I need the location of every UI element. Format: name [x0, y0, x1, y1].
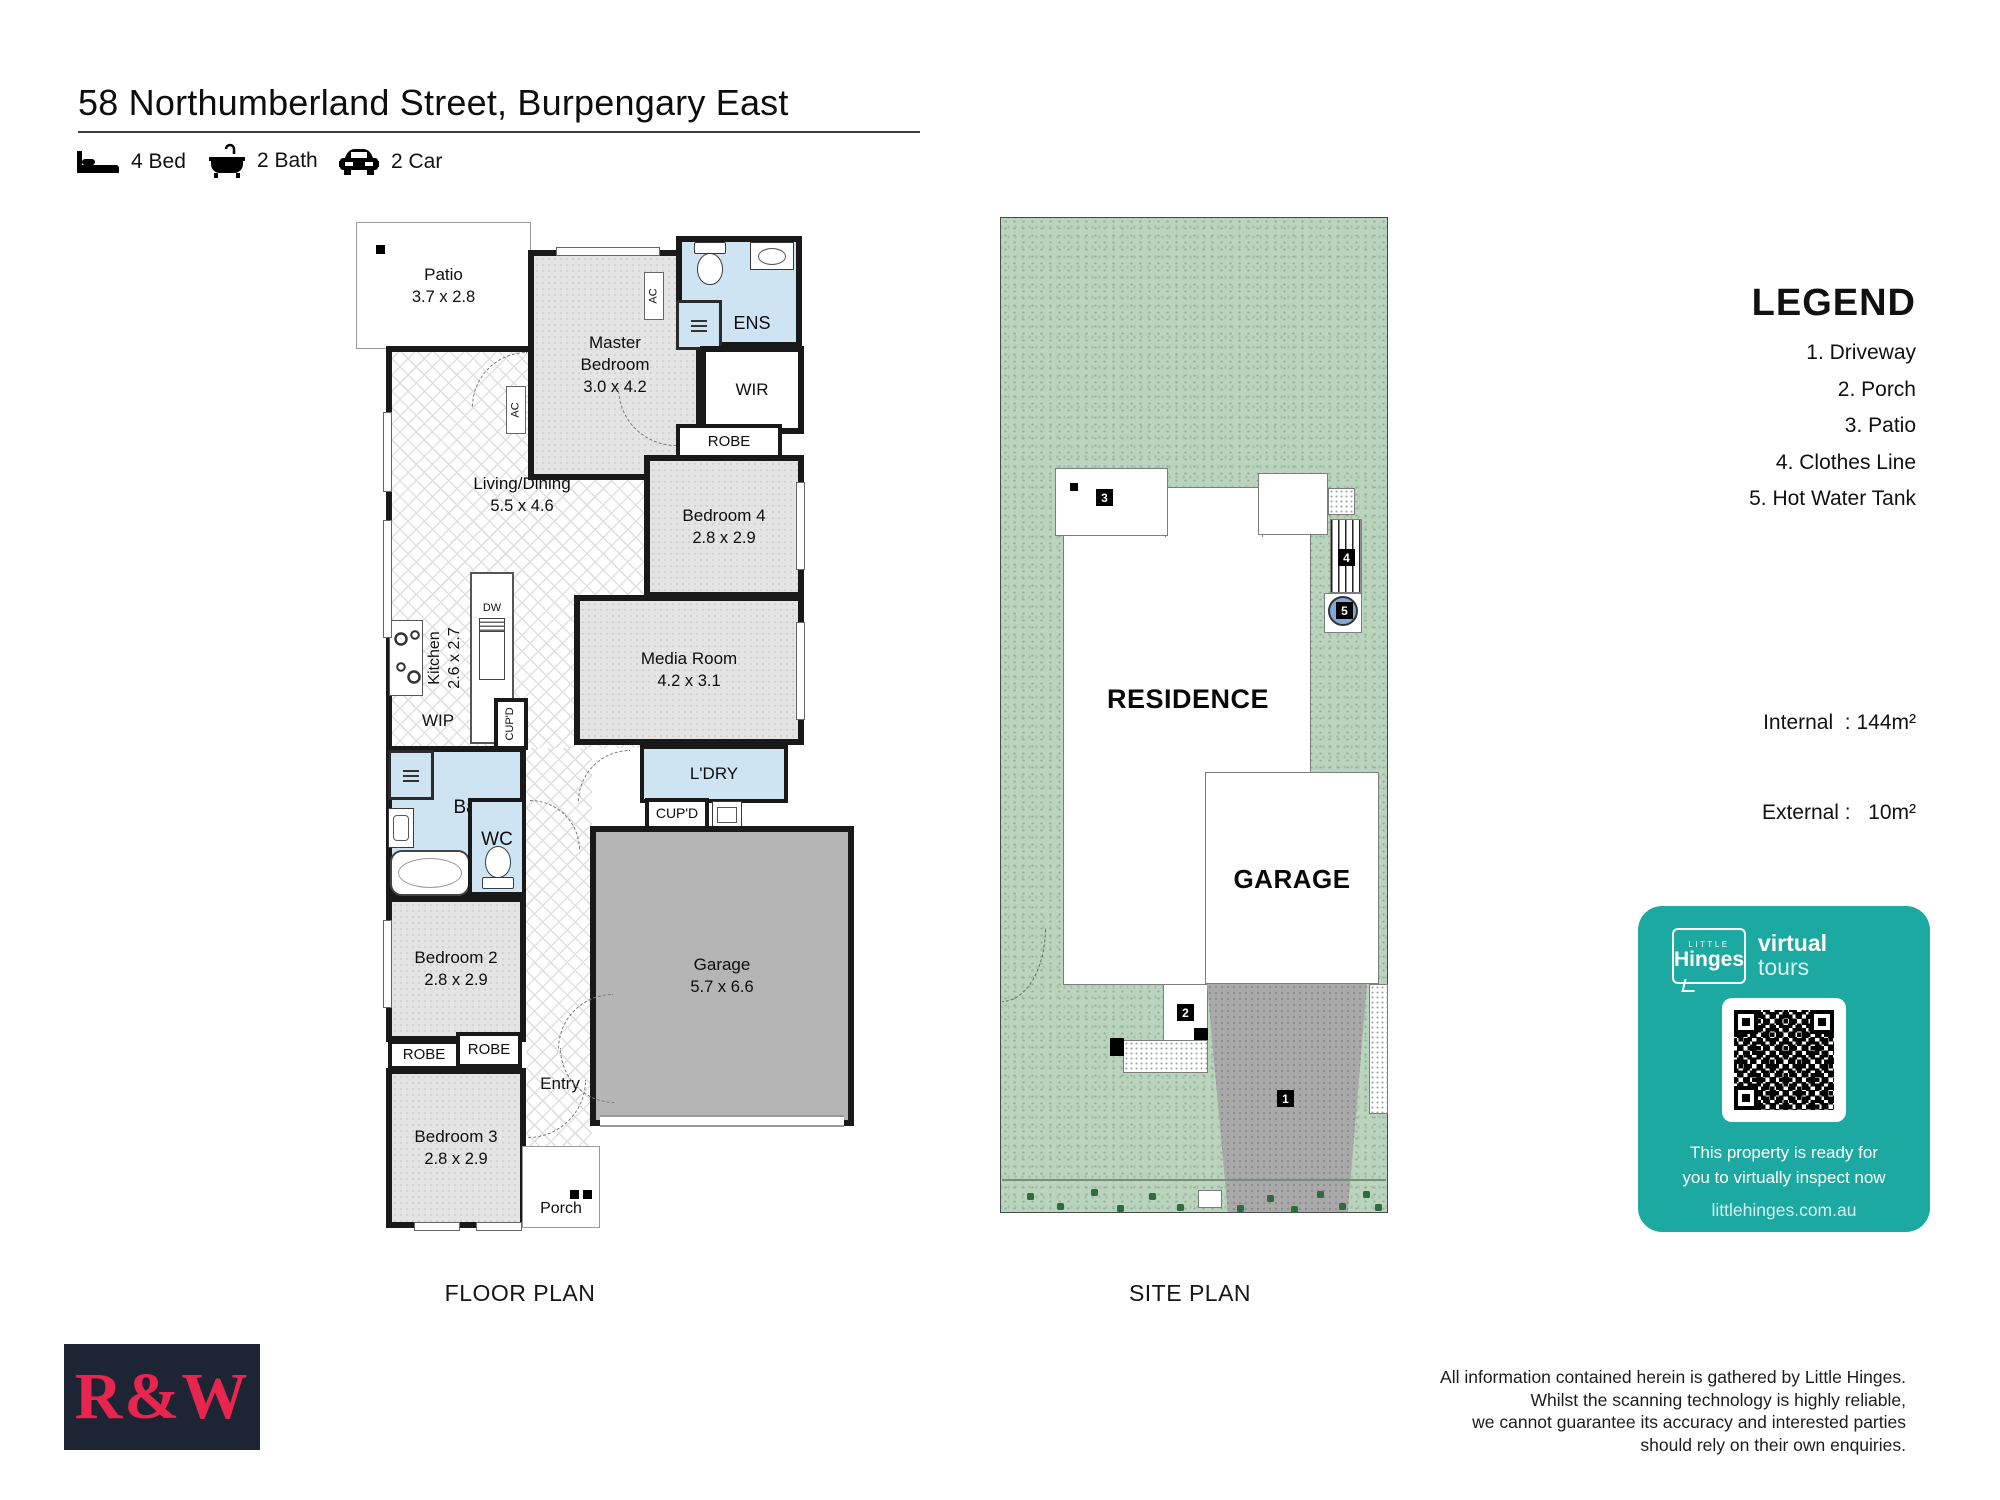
floor-plan-caption: FLOOR PLAN [420, 1280, 620, 1307]
legend-item: 2. Porch [1596, 372, 1916, 409]
garden-shrubs [1002, 1182, 1003, 1183]
bathtub-basin [398, 858, 462, 888]
window [383, 520, 392, 638]
robe-left: ROBE [388, 1040, 460, 1070]
bath-icon [207, 142, 247, 180]
car-icon [337, 145, 381, 178]
marker-clothes-line: 4 [1338, 549, 1355, 566]
internal-area: Internal : 144m² [1596, 708, 1916, 738]
shower-icon [388, 750, 434, 800]
room-bedroom2: Bedroom 2 2.8 x 2.9 [386, 896, 526, 1042]
toilet-icon [694, 242, 726, 288]
title-divider [78, 131, 920, 133]
window [796, 622, 805, 720]
disclaimer-line: Whilst the scanning technology is highly… [1346, 1389, 1906, 1412]
stove-icon [389, 620, 423, 696]
qr-code [1734, 1010, 1834, 1110]
legend-item: 4. Clothes Line [1596, 445, 1916, 482]
site-side-path [1369, 984, 1388, 1114]
room-label: ENS [733, 312, 770, 335]
site-plan-caption: SITE PLAN [1090, 1280, 1290, 1307]
window [383, 920, 392, 1008]
sink-icon [750, 242, 794, 270]
page-title: 58 Northumberland Street, Burpengary Eas… [78, 82, 789, 124]
legend-item: 1. Driveway [1596, 335, 1916, 372]
window [796, 482, 805, 570]
toilet-bowl [485, 846, 511, 878]
agency-logo-text: R&W [75, 1359, 250, 1435]
room-label: Master Bedroom [567, 332, 663, 375]
cupboard-kitchen: CUP'D [494, 698, 528, 750]
marker-porch: 2 [1177, 1004, 1194, 1021]
room-kitchen-label: Kitchen 2.6 x 2.7 [423, 598, 467, 718]
marker-hot-water-tank: 5 [1336, 602, 1353, 619]
bed-icon [75, 146, 121, 178]
room-label: ROBE [708, 433, 751, 452]
room-laundry: L'DRY [640, 745, 788, 803]
disclaimer: All information contained herein is gath… [1346, 1366, 1906, 1456]
patio-post-marker [376, 245, 385, 254]
garden-edge [1002, 1179, 1386, 1181]
feature-cars: 2 Car [337, 145, 442, 178]
room-dims: 4.2 x 3.1 [657, 671, 720, 692]
room-label: Media Room [641, 648, 737, 669]
card-message-line2: you to virtually inspect now [1638, 1165, 1930, 1190]
room-bedroom4: Bedroom 4 2.8 x 2.9 [644, 455, 804, 598]
virtual-tours-wordmark: virtual tours [1758, 931, 1827, 980]
brand-virtual: virtual [1758, 931, 1827, 955]
sink-basin [393, 815, 409, 841]
garage-door [600, 1115, 844, 1127]
residence-label: RESIDENCE [1065, 684, 1311, 715]
site-wall-stub [1194, 1028, 1208, 1040]
room-label: CUP'D [656, 805, 698, 823]
toilet-tank [482, 877, 514, 889]
disclaimer-line: we cannot guarantee its accuracy and int… [1346, 1411, 1906, 1434]
room-porch: Porch [522, 1146, 600, 1228]
laundry-tub-icon [712, 801, 742, 828]
room-dims: 2.8 x 2.9 [424, 1149, 487, 1170]
ac-label: AC [648, 288, 660, 303]
room-dims: 5.7 x 6.6 [690, 977, 753, 998]
garage-site-label: GARAGE [1205, 864, 1379, 895]
marker-driveway: 1 [1277, 1090, 1294, 1107]
qr-code-box [1722, 998, 1846, 1122]
shower-head [691, 318, 707, 332]
room-label: WIR [735, 379, 768, 400]
brand-hinges: Hinges [1674, 949, 1744, 971]
legend-item: 5. Hot Water Tank [1596, 481, 1916, 518]
dishwasher-label: DW [472, 602, 512, 614]
room-dims: 3.7 x 2.8 [412, 287, 475, 308]
site-letterbox [1198, 1190, 1222, 1208]
little-hinges-logo: LITTLE Hinges virtual tours [1672, 928, 1827, 984]
agency-logo: R&W [64, 1344, 260, 1450]
room-label: Bedroom 2 [414, 947, 497, 968]
toilet-icon [482, 846, 514, 892]
card-website: littlehinges.com.au [1638, 1200, 1930, 1221]
porch-post-marker [583, 1190, 592, 1199]
room-label: Bedroom 3 [414, 1126, 497, 1147]
shower-head [403, 768, 419, 782]
legend-title: LEGEND [1596, 282, 1916, 325]
room-dims: 2.8 x 2.9 [424, 970, 487, 991]
shower-icon [676, 300, 722, 350]
legend: LEGEND 1. Driveway 2. Porch 3. Patio 4. … [1596, 282, 1916, 518]
car-count-label: 2 Car [391, 150, 442, 174]
sink-basin [758, 248, 786, 265]
laundry-basin [717, 807, 737, 823]
room-dims: 2.8 x 2.9 [692, 528, 755, 549]
disclaimer-line: All information contained herein is gath… [1346, 1366, 1906, 1389]
card-message-line1: This property is ready for [1638, 1140, 1930, 1165]
room-label: Patio [424, 264, 463, 285]
site-wall-stub [1110, 1038, 1124, 1056]
room-wip-label: WIP [408, 711, 468, 731]
room-label: Bedroom 4 [682, 505, 765, 526]
room-label: L'DRY [690, 763, 738, 784]
room-label: ROBE [403, 1046, 446, 1065]
card-message: This property is ready for you to virtua… [1638, 1140, 1930, 1190]
hinges-bubble-icon: LITTLE Hinges [1672, 928, 1746, 984]
room-label: Porch [540, 1199, 582, 1219]
room-label: ROBE [468, 1041, 511, 1060]
site-residence-step [1165, 487, 1263, 537]
window [556, 247, 660, 256]
feature-baths: 2 Bath [207, 142, 318, 180]
room-label: Garage [694, 954, 751, 975]
vanity-icon [388, 808, 414, 848]
room-dims: 5.5 x 4.6 [490, 496, 553, 517]
site-rear-porch [1328, 488, 1355, 515]
site-patio-post [1070, 483, 1078, 491]
room-bedroom3: Bedroom 3 2.8 x 2.9 [386, 1068, 526, 1228]
room-garage: Garage 5.7 x 6.6 [590, 826, 854, 1126]
window [414, 1222, 460, 1231]
virtual-tour-card: LITTLE Hinges virtual tours This propert… [1638, 906, 1930, 1232]
room-patio: Patio 3.7 x 2.8 [356, 222, 531, 349]
disclaimer-line: should rely on their own enquiries. [1346, 1434, 1906, 1457]
external-area: External : 10m² [1596, 798, 1916, 828]
room-dims: 2.6 x 2.7 [445, 627, 465, 688]
legend-item: 3. Patio [1596, 408, 1916, 445]
ac-unit: AC [644, 272, 664, 320]
room-label: Kitchen [425, 631, 445, 684]
bed-count-label: 4 Bed [131, 150, 186, 174]
brand-tours: tours [1758, 955, 1827, 980]
speech-tail [1681, 979, 1697, 992]
robe-right: ROBE [456, 1032, 522, 1068]
room-wir: WIR [700, 346, 804, 434]
area-summary: Internal : 144m² External : 10m² [1596, 648, 1916, 888]
room-label: CUP'D [504, 707, 518, 740]
feature-beds: 4 Bed [75, 146, 186, 178]
dishwasher-icon [479, 618, 505, 680]
flyer-page: 58 Northumberland Street, Burpengary Eas… [0, 0, 2000, 1500]
bathtub-icon [390, 850, 470, 896]
window [383, 412, 392, 492]
window [476, 1222, 522, 1231]
site-steps [1123, 1040, 1208, 1073]
room-media: Media Room 4.2 x 3.1 [574, 595, 804, 745]
site-wing [1258, 473, 1328, 535]
toilet-bowl [697, 253, 723, 285]
dishwasher-panel [480, 619, 504, 632]
porch-post-marker [570, 1190, 579, 1199]
bath-count-label: 2 Bath [257, 149, 318, 173]
marker-patio: 3 [1096, 489, 1113, 506]
